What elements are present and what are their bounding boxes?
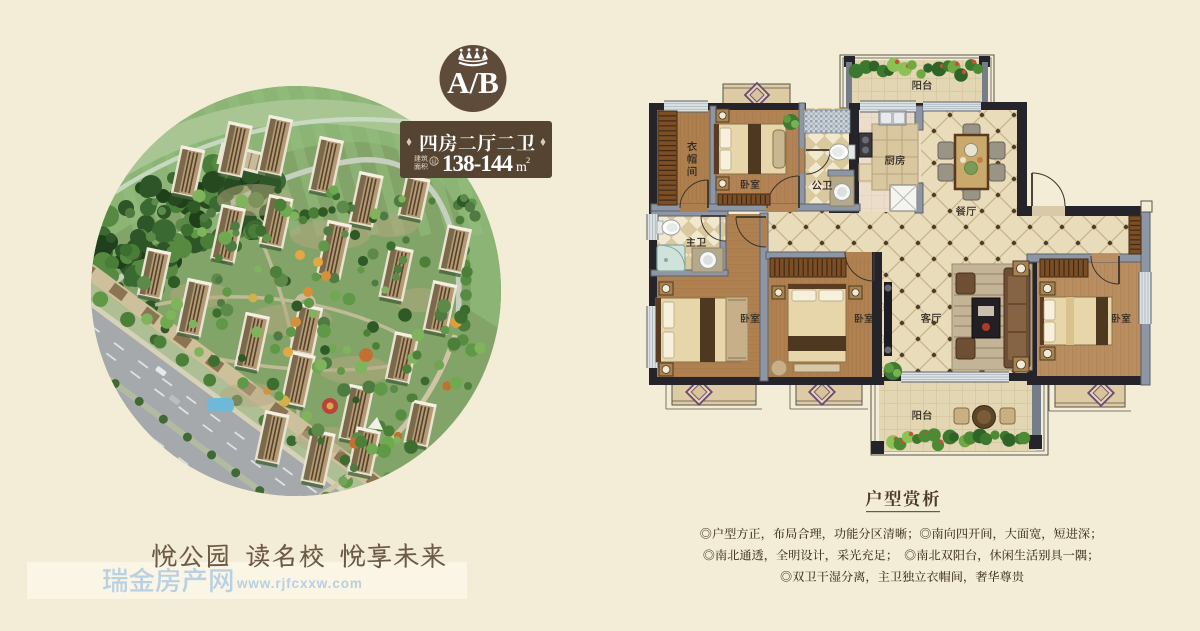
svg-text:2: 2 [526,155,530,165]
svg-text:A/B: A/B [447,65,499,100]
svg-text:138-144: 138-144 [442,151,514,176]
svg-text:www.rjfcxxw.com: www.rjfcxxw.com [236,576,363,591]
